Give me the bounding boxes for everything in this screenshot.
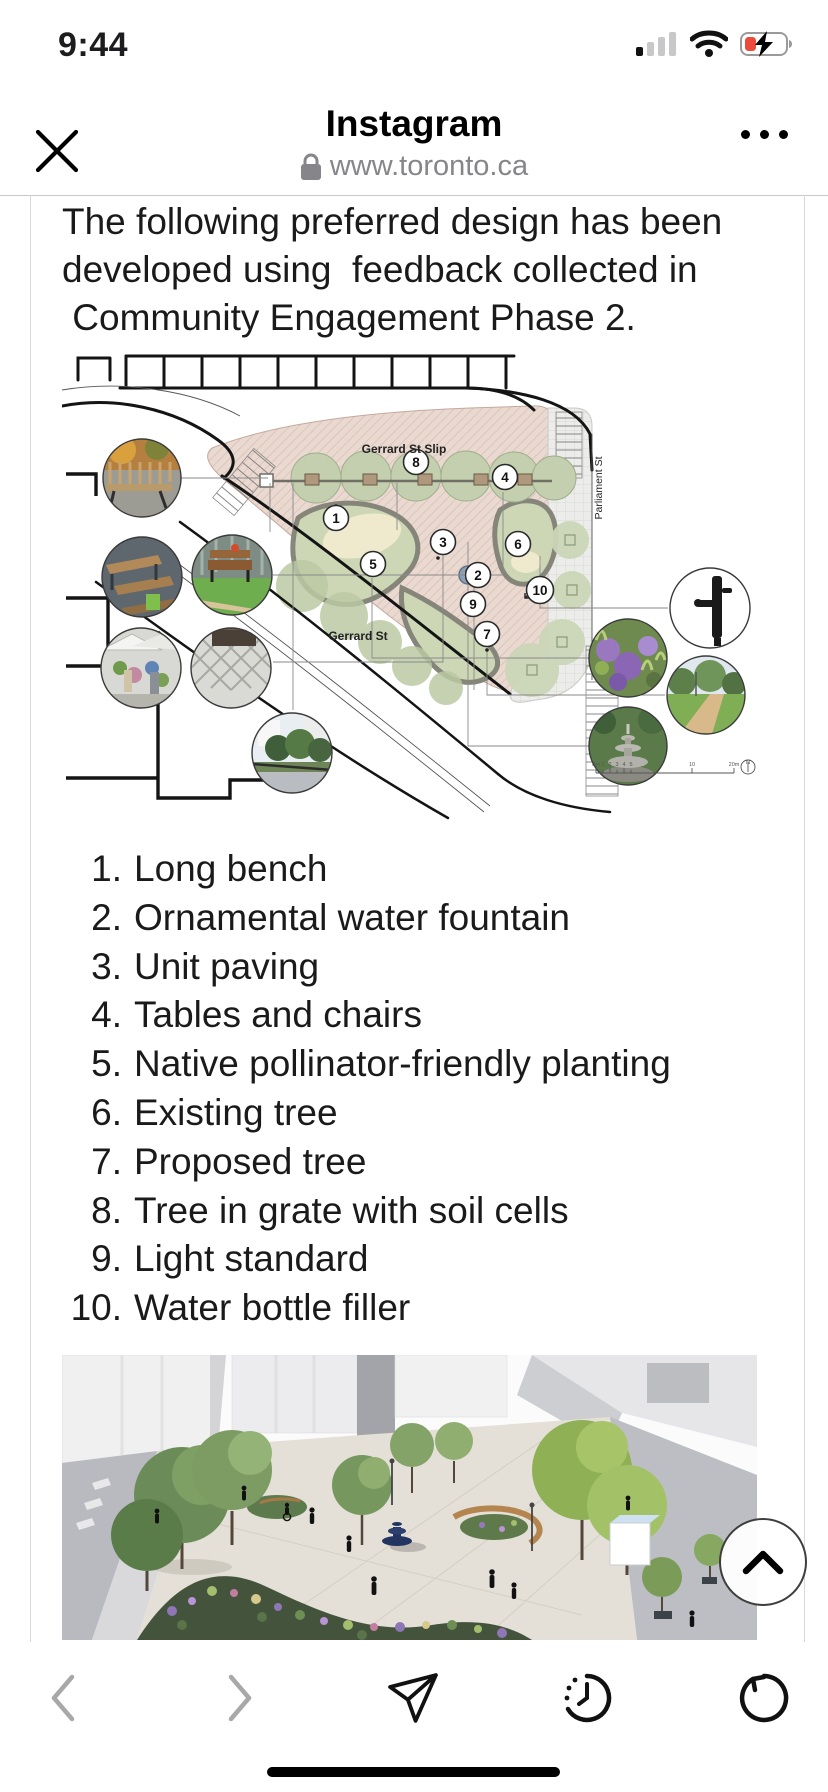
inset-photo-picnic-tables (102, 537, 182, 617)
list-item: 3.Unit paving (60, 943, 780, 992)
svg-text:10: 10 (689, 762, 695, 768)
list-item: 2.Ornamental water fountain (60, 894, 780, 943)
close-icon (30, 124, 84, 178)
intro-line: Community Engagement Phase 2. (62, 294, 772, 342)
status-icons (636, 30, 798, 58)
list-item: 7.Proposed tree (60, 1138, 780, 1187)
url-bar[interactable]: www.toronto.ca (164, 150, 664, 183)
inset-photo-park-path (667, 656, 746, 734)
render-image (62, 1355, 757, 1640)
url-text: www.toronto.ca (330, 150, 528, 183)
back-button[interactable] (31, 1666, 95, 1730)
plan-callout: 10 (527, 577, 554, 604)
svg-text:3: 3 (615, 762, 618, 768)
svg-text:2: 2 (608, 762, 611, 768)
list-item: 1.Long bench (60, 845, 780, 894)
battery-charging-icon (740, 30, 798, 58)
forward-button[interactable] (208, 1666, 272, 1730)
browser-header: Instagram www.toronto.ca (0, 62, 828, 196)
back-icon (48, 1672, 78, 1724)
list-item: 10.Water bottle filler (60, 1284, 780, 1333)
svg-text:4: 4 (622, 762, 625, 768)
inset-photo-market (101, 628, 181, 708)
share-button[interactable] (381, 1666, 445, 1730)
svg-text:3: 3 (439, 535, 447, 550)
svg-text:6: 6 (514, 537, 522, 552)
home-indicator[interactable] (267, 1767, 560, 1777)
history-icon (559, 1670, 615, 1726)
svg-text:5: 5 (369, 557, 377, 572)
inset-photo-street-trees (252, 713, 332, 793)
reload-icon (736, 1670, 792, 1726)
svg-text:7: 7 (483, 627, 491, 642)
plan-callout: 6 (506, 532, 531, 557)
status-bar: 9:44 (0, 0, 828, 62)
page-title: Instagram (164, 104, 664, 144)
lock-icon (300, 153, 322, 181)
svg-text:20m: 20m (729, 762, 740, 768)
svg-text:1: 1 (332, 511, 340, 526)
svg-text:5: 5 (629, 762, 632, 768)
intro-paragraph: The following preferred design has been … (62, 198, 772, 342)
list-item: 8.Tree in grate with soil cells (60, 1187, 780, 1236)
ellipsis-icon (741, 130, 750, 139)
list-item: 6.Existing tree (60, 1089, 780, 1138)
svg-text:10: 10 (532, 583, 547, 598)
status-time: 9:44 (58, 26, 128, 65)
svg-text:2: 2 (474, 568, 482, 583)
svg-text:0m: 0m (592, 762, 600, 768)
scroll-to-top-button[interactable] (719, 1518, 807, 1606)
inset-diagram-bottle-filler (670, 568, 750, 648)
plan-callout: 9 (461, 592, 486, 617)
chevron-up-icon (740, 1547, 786, 1577)
cellular-signal-icon (636, 30, 678, 58)
close-button[interactable] (30, 124, 84, 178)
more-options-button[interactable] (734, 114, 794, 154)
svg-text:4: 4 (501, 470, 509, 485)
plan-callout: 5 (361, 552, 386, 577)
intro-line: developed using feedback collected in (62, 246, 772, 294)
street-label-gerrard-slip: Gerrard St Slip (362, 442, 447, 456)
street-label-parliament: Parliament St (593, 456, 605, 519)
svg-text:N: N (746, 760, 750, 766)
plan-callout: 1 (324, 506, 349, 531)
header-title-block: Instagram www.toronto.ca (164, 104, 664, 183)
reload-button[interactable] (732, 1666, 796, 1730)
list-item: 4.Tables and chairs (60, 991, 780, 1040)
inset-photo-bench-swing (192, 535, 272, 616)
plan-callout: 7 (475, 622, 500, 647)
wifi-icon (690, 30, 728, 58)
svg-text:8: 8 (412, 455, 420, 470)
forward-icon (225, 1672, 255, 1724)
list-item: 9.Light standard (60, 1235, 780, 1284)
site-plan-image: 1 2 3 4 5 6 7 8 9 10 Gerrard St Slip Par… (62, 350, 792, 820)
legend-list: 1.Long bench 2.Ornamental water fountain… (60, 845, 780, 1333)
share-icon (385, 1670, 441, 1726)
svg-text:1: 1 (601, 762, 604, 768)
inset-photo-pollinator-planting (589, 619, 667, 697)
plan-callout: 4 (493, 465, 518, 490)
street-label-gerrard: Gerrard St (328, 629, 387, 643)
plan-callout: 3 (431, 530, 456, 555)
svg-text:9: 9 (469, 597, 477, 612)
intro-line: The following preferred design has been (62, 198, 772, 246)
history-button[interactable] (555, 1666, 619, 1730)
plan-callout: 2 (466, 563, 491, 588)
list-item: 5.Native pollinator-friendly planting (60, 1040, 780, 1089)
